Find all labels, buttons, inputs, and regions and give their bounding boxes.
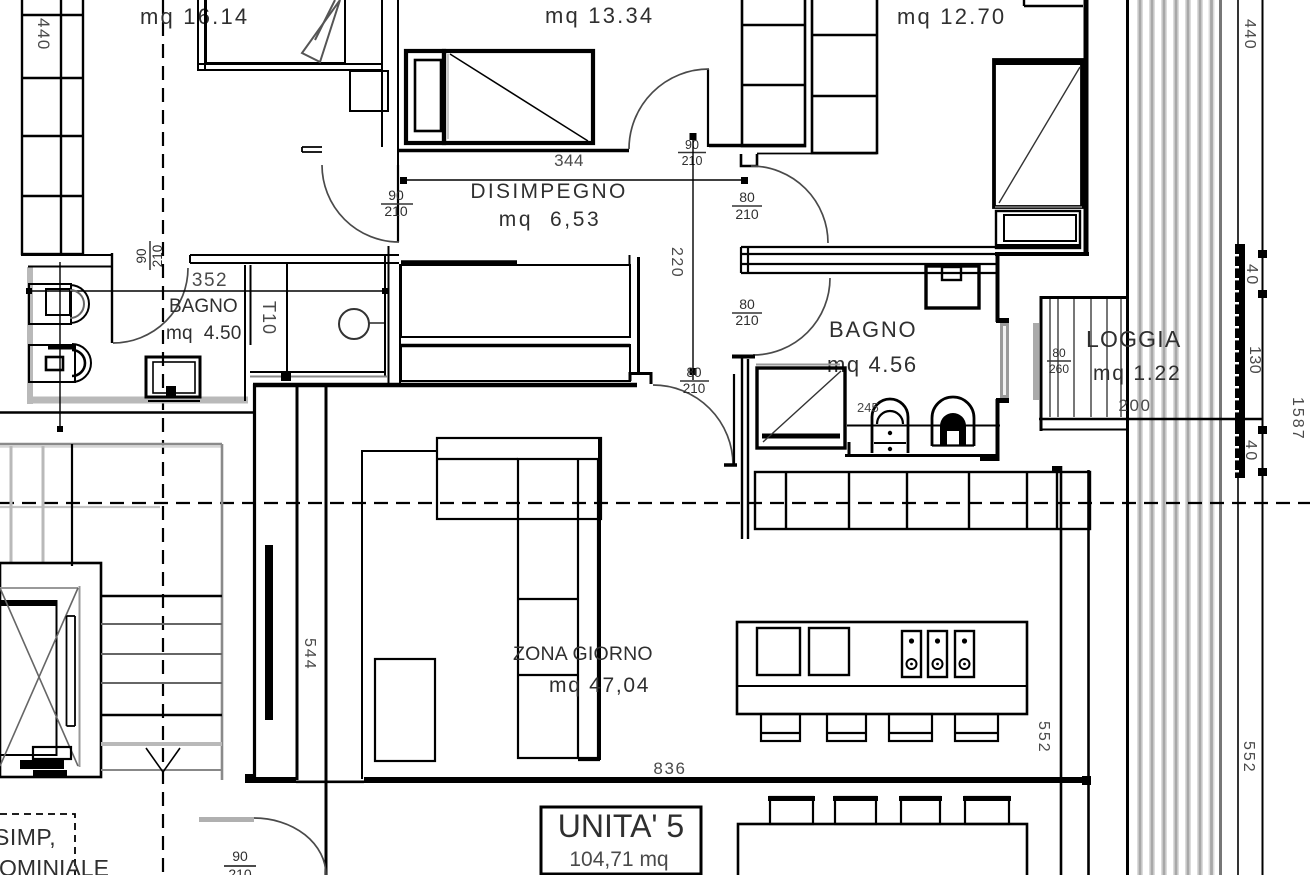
svg-text:210: 210 xyxy=(735,312,759,328)
svg-text:440: 440 xyxy=(1241,19,1258,50)
svg-text:130: 130 xyxy=(1246,346,1263,374)
svg-text:210: 210 xyxy=(228,866,252,875)
svg-text:90: 90 xyxy=(134,248,149,263)
svg-text:544: 544 xyxy=(301,638,318,671)
svg-text:80: 80 xyxy=(739,296,755,312)
svg-text:UNITA' 5: UNITA' 5 xyxy=(558,808,684,844)
svg-text:SIMP,: SIMP, xyxy=(0,824,56,850)
svg-text:OMINIALE: OMINIALE xyxy=(0,855,109,875)
svg-text:mq 6,53: mq 6,53 xyxy=(499,208,602,231)
svg-text:mq 47,04: mq 47,04 xyxy=(549,674,650,697)
svg-text:210: 210 xyxy=(735,206,759,222)
svg-text:80: 80 xyxy=(739,189,755,205)
svg-text:T10: T10 xyxy=(259,301,279,335)
svg-text:210: 210 xyxy=(384,203,408,219)
svg-text:352: 352 xyxy=(192,270,228,291)
svg-text:344: 344 xyxy=(554,151,584,170)
svg-text:LOGGIA: LOGGIA xyxy=(1086,326,1181,352)
svg-text:210: 210 xyxy=(150,245,165,268)
svg-text:ZONA GIORNO: ZONA GIORNO xyxy=(513,643,653,665)
svg-text:200: 200 xyxy=(1118,396,1151,415)
svg-text:mq 16.14: mq 16.14 xyxy=(140,4,249,29)
svg-text:220: 220 xyxy=(668,247,685,278)
svg-text:mq 4.56: mq 4.56 xyxy=(827,352,918,377)
svg-text:90: 90 xyxy=(685,138,699,152)
svg-text:836: 836 xyxy=(653,759,686,778)
svg-text:440: 440 xyxy=(34,18,53,51)
svg-text:90: 90 xyxy=(388,187,404,203)
svg-text:80: 80 xyxy=(1052,346,1066,360)
svg-text:mq 12.70: mq 12.70 xyxy=(897,4,1006,29)
svg-text:245: 245 xyxy=(857,400,879,415)
svg-text:552: 552 xyxy=(1240,741,1257,774)
svg-text:552: 552 xyxy=(1035,721,1052,754)
svg-text:mq 4.50: mq 4.50 xyxy=(166,323,242,344)
svg-text:80: 80 xyxy=(686,365,701,380)
svg-text:90: 90 xyxy=(232,848,248,864)
svg-text:DISIMPEGNO: DISIMPEGNO xyxy=(470,180,627,203)
svg-text:1587: 1587 xyxy=(1289,397,1306,441)
svg-text:40: 40 xyxy=(1243,264,1260,287)
svg-text:210: 210 xyxy=(683,381,706,396)
svg-text:BAGNO: BAGNO xyxy=(169,296,238,317)
svg-text:260: 260 xyxy=(1049,362,1069,376)
svg-text:mq 13.34: mq 13.34 xyxy=(545,3,654,28)
svg-text:mq 1.22: mq 1.22 xyxy=(1093,362,1181,385)
svg-text:104,71 mq: 104,71 mq xyxy=(569,848,668,871)
svg-text:BAGNO: BAGNO xyxy=(829,317,917,342)
svg-text:210: 210 xyxy=(682,154,703,168)
svg-text:40: 40 xyxy=(1242,440,1259,463)
